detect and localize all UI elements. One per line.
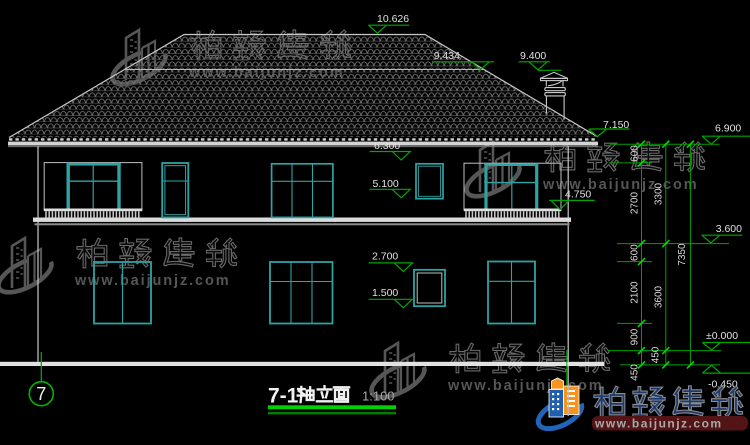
- svg-text:5.100: 5.100: [373, 178, 399, 190]
- svg-text:2700: 2700: [630, 191, 641, 214]
- svg-text:7: 7: [36, 384, 46, 404]
- svg-text:9.400: 9.400: [520, 50, 546, 62]
- svg-text:9.434: 9.434: [434, 50, 460, 62]
- svg-text:7-1: 7-1: [268, 385, 299, 408]
- svg-text:6.900: 6.900: [715, 123, 741, 135]
- svg-text:3300: 3300: [654, 182, 665, 205]
- svg-text:4.750: 4.750: [565, 189, 591, 201]
- svg-text:600: 600: [630, 244, 641, 261]
- svg-text:7.150: 7.150: [603, 119, 629, 131]
- svg-text:10.626: 10.626: [377, 13, 409, 25]
- svg-text:7350: 7350: [677, 243, 688, 266]
- svg-text:600: 600: [630, 145, 641, 162]
- svg-text:450: 450: [651, 346, 662, 363]
- svg-text:2100: 2100: [630, 281, 641, 304]
- svg-text:±0.000: ±0.000: [706, 330, 738, 342]
- svg-text:6.300: 6.300: [374, 140, 400, 152]
- svg-text:3.600: 3.600: [716, 223, 742, 235]
- svg-text:900: 900: [630, 328, 641, 345]
- svg-text:3600: 3600: [654, 285, 665, 308]
- svg-text:2.700: 2.700: [372, 250, 398, 262]
- svg-text:450: 450: [630, 364, 641, 381]
- svg-text:1.500: 1.500: [372, 287, 398, 299]
- svg-text:www.baijunjz.com: www.baijunjz.com: [594, 416, 723, 430]
- svg-text:1:100: 1:100: [362, 389, 395, 404]
